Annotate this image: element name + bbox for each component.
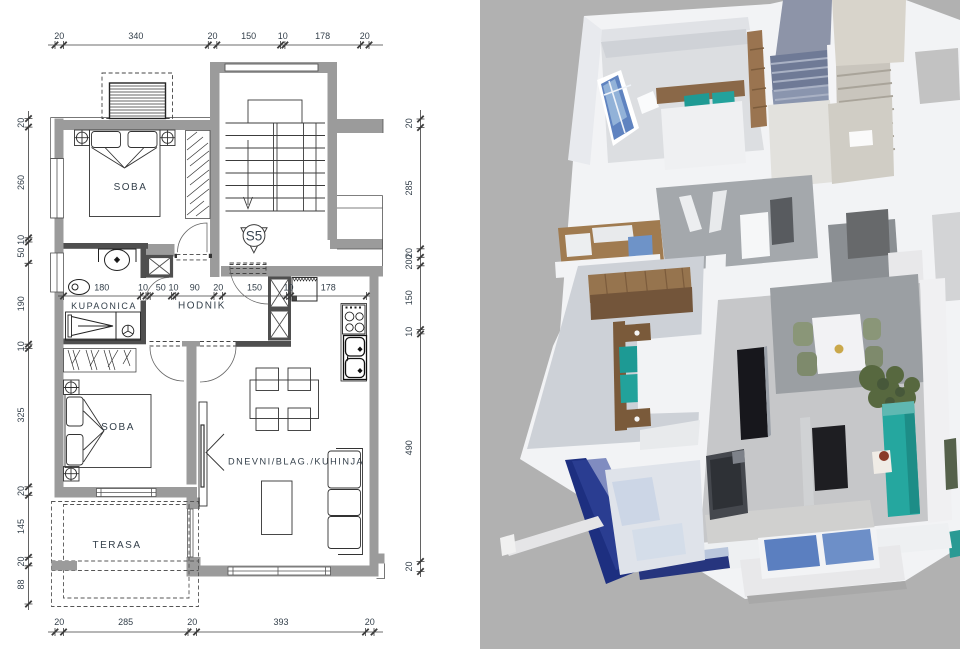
svg-text:150: 150 (404, 290, 414, 305)
svg-text:20: 20 (404, 561, 414, 571)
svg-text:20: 20 (360, 31, 370, 41)
svg-text:340: 340 (128, 31, 143, 41)
svg-text:DNEVNI/BLAG./KUHINJA: DNEVNI/BLAG./KUHINJA (228, 457, 364, 467)
svg-text:20: 20 (16, 486, 26, 496)
svg-text:393: 393 (273, 617, 288, 627)
svg-text:200: 200 (404, 254, 414, 269)
svg-text:TERASA: TERASA (92, 540, 141, 551)
svg-text:KUPAONICA: KUPAONICA (71, 301, 137, 311)
svg-text:50: 50 (16, 248, 26, 258)
svg-text:20: 20 (16, 118, 26, 128)
svg-text:325: 325 (16, 407, 26, 422)
svg-text:10: 10 (283, 283, 293, 293)
svg-text:10: 10 (168, 283, 178, 293)
svg-text:20: 20 (16, 556, 26, 566)
svg-text:20: 20 (54, 31, 64, 41)
svg-text:20: 20 (365, 617, 375, 627)
svg-text:SOBA: SOBA (114, 182, 148, 193)
svg-text:178: 178 (321, 283, 336, 293)
svg-text:145: 145 (16, 519, 26, 534)
svg-text:HODNIK: HODNIK (178, 301, 226, 312)
svg-text:285: 285 (404, 180, 414, 195)
svg-text:88: 88 (16, 579, 26, 589)
svg-text:20: 20 (187, 617, 197, 627)
svg-text:10: 10 (278, 31, 288, 41)
svg-text:10: 10 (404, 327, 414, 337)
svg-text:190: 190 (16, 296, 26, 311)
svg-text:150: 150 (241, 31, 256, 41)
svg-text:285: 285 (118, 617, 133, 627)
svg-text:260: 260 (16, 175, 26, 190)
svg-text:SOBA: SOBA (101, 422, 135, 433)
svg-text:490: 490 (404, 440, 414, 455)
svg-text:90: 90 (190, 283, 200, 293)
svg-text:S5: S5 (246, 229, 263, 244)
svg-text:10: 10 (138, 283, 148, 293)
svg-text:20: 20 (54, 617, 64, 627)
svg-text:150: 150 (247, 283, 262, 293)
svg-text:10: 10 (16, 235, 26, 245)
svg-text:20: 20 (207, 31, 217, 41)
svg-text:10: 10 (16, 341, 26, 351)
svg-text:180: 180 (94, 283, 109, 293)
svg-text:50: 50 (156, 283, 166, 293)
svg-text:20: 20 (213, 283, 223, 293)
svg-text:20: 20 (404, 118, 414, 128)
svg-text:178: 178 (315, 31, 330, 41)
